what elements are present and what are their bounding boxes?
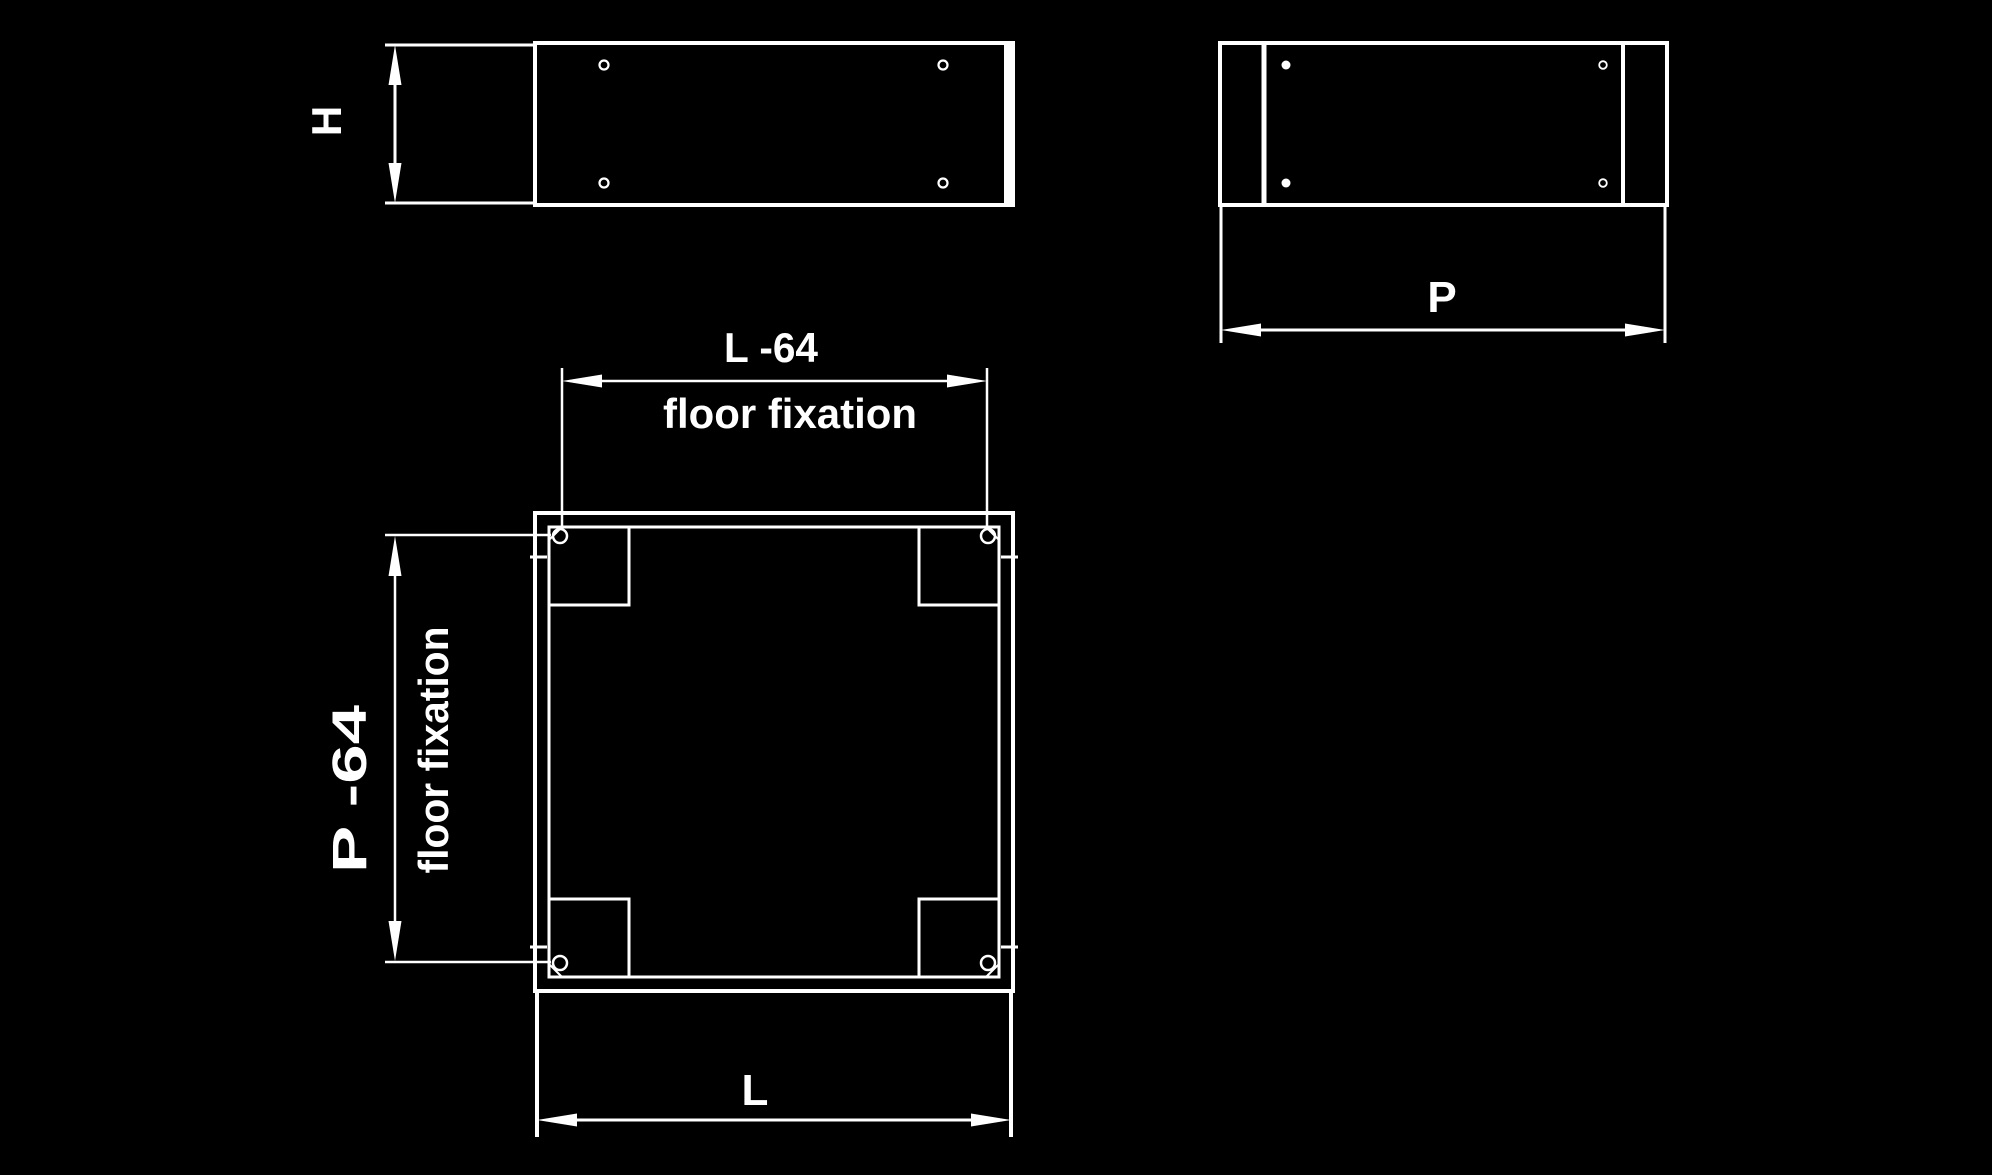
top-view-inner-frame [549, 527, 999, 977]
mounting-hole [1599, 61, 1607, 69]
dimension-h: H [303, 45, 535, 203]
arrowhead-right-icon [1625, 324, 1665, 337]
drawing-canvas: H P [0, 0, 1992, 1175]
corner-gusset [919, 527, 999, 605]
label-width: L [742, 1066, 769, 1115]
side-view: P [1220, 43, 1667, 343]
arrowhead-left-icon [562, 375, 602, 388]
arrowhead-up-icon [389, 536, 402, 576]
fixation-hole [981, 956, 995, 970]
front-view-right-post-edge [1004, 43, 1014, 205]
dimension-l64: L -64 floor fixation [562, 324, 987, 530]
label-floor-fixation-top: floor fixation [663, 390, 917, 437]
corner-gusset [549, 899, 629, 977]
label-height: H [303, 106, 350, 136]
technical-drawing: H P [0, 0, 1992, 1175]
fixation-hole [981, 529, 995, 543]
label-depth: P [1427, 273, 1456, 322]
corner-gusset [919, 899, 999, 977]
dimension-p: P [1221, 205, 1665, 343]
arrowhead-right-icon [971, 1114, 1011, 1127]
fixation-hole [553, 529, 567, 543]
front-view: H [303, 43, 1014, 205]
mounting-hole [939, 61, 948, 70]
arrowhead-left-icon [1221, 324, 1261, 337]
mounting-hole [600, 179, 609, 188]
top-view-outer-frame [535, 513, 1013, 991]
fixation-hole [553, 956, 567, 970]
arrowhead-down-icon [389, 921, 402, 961]
dimension-l: L [537, 993, 1011, 1137]
arrowhead-up-icon [389, 45, 402, 85]
bolt-hole [1282, 179, 1291, 188]
mounting-hole [939, 179, 948, 188]
arrowhead-right-icon [947, 375, 987, 388]
dimension-p64: P -64 floor fixation [324, 535, 551, 962]
label-hole-spacing-depth: P -64 [324, 705, 377, 873]
arrowhead-down-icon [389, 163, 402, 203]
mounting-hole [1599, 179, 1607, 187]
mounting-hole [600, 61, 609, 70]
corner-gusset [549, 527, 629, 605]
top-view [530, 513, 1018, 991]
bolt-hole [1282, 61, 1291, 70]
label-floor-fixation-left: floor fixation [410, 627, 457, 874]
arrowhead-left-icon [537, 1114, 577, 1127]
label-hole-spacing-width: L -64 [724, 324, 819, 371]
